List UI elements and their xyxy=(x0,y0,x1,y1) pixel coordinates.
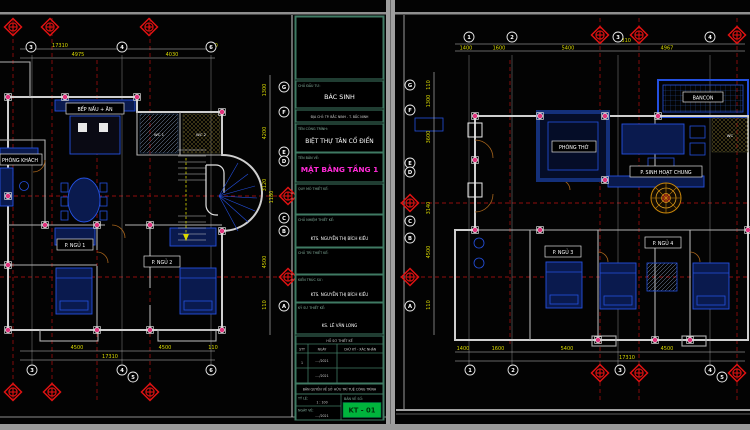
dim-label: 110 xyxy=(426,80,432,90)
grid-bubble: G xyxy=(408,83,412,89)
table-header: NGÀY xyxy=(318,347,327,352)
investor-label: CHỦ ĐẦU TƯ: xyxy=(298,83,320,88)
room-label-wc1: WC 1 xyxy=(154,132,165,137)
grid-bubble: 4 xyxy=(120,368,124,374)
copyright-line: BẢN QUYỀN VỀ SỞ HỮU TRÍ TUỆ CÔNG TRÌNH xyxy=(303,387,377,392)
dim-label: 4500 xyxy=(661,346,674,352)
project-label: TÊN CÔNG TRÌNH: xyxy=(297,126,328,131)
grid-bubble: 3 xyxy=(29,45,33,51)
right-plan-carpet xyxy=(651,183,681,213)
grid-bubble: G xyxy=(282,85,286,91)
date-label: NGÀY VẼ: xyxy=(298,408,314,413)
drawing-name: MẶT BẰNG TẦNG 1 xyxy=(301,164,379,174)
bed-1 xyxy=(56,268,92,314)
grid-bubble: 3 xyxy=(30,368,34,374)
room-label-balcony: BANCON xyxy=(693,96,714,102)
room-label-living: PHÒNG KHÁCH xyxy=(2,157,38,164)
dim-label: 3600 xyxy=(426,131,432,144)
cad-sheet[interactable]: 17310 4975 4030 110 4500 4500 110 17310 … xyxy=(0,0,750,430)
right-plan-balcony: BANCON xyxy=(658,80,748,117)
title-block: CHỦ ĐẦU TƯ: BÁC SINH ĐỊA CHỈ: TP. BẮC NI… xyxy=(295,16,384,420)
dim-label: 4500 xyxy=(262,256,268,269)
dim-label: 1300 xyxy=(426,95,432,108)
grid-bubble: A xyxy=(408,304,412,310)
dim-label: 1180 xyxy=(269,191,275,204)
grid-bubble: 3 xyxy=(616,35,620,41)
grid-bubble: 1 xyxy=(468,368,472,374)
grid-bubble: 2 xyxy=(511,368,515,374)
architect-name: KTS. NGUYỄN THỊ BÍCH KIỀU xyxy=(311,292,369,297)
project-name: BIỆT THỰ TÂN CỔ ĐIỂN xyxy=(305,137,373,145)
dim-label: 17310 xyxy=(102,354,118,360)
scale-value: 1 : 100 xyxy=(316,401,327,405)
dim-label: 4500 xyxy=(426,246,432,259)
dim-label: 4500 xyxy=(71,345,84,351)
engineer-name: KS. LÊ VĂN LONG xyxy=(322,323,358,328)
drawing-label: TÊN BẢN VẼ: xyxy=(297,155,319,160)
investor-name: BÁC SINH xyxy=(324,92,355,101)
bed-4b xyxy=(693,263,729,309)
grid-bubble: 5 xyxy=(720,375,724,381)
title-block-table: HỒ SƠ THIẾT KẾ STT NGÀY CHỮ KÝ - XÁC NHẬ… xyxy=(296,336,383,383)
grid-bubble: 2 xyxy=(510,35,514,41)
sheet-label: BẢN VẼ SỐ: xyxy=(344,396,363,401)
dim-label: 4975 xyxy=(72,52,85,58)
dim-label: 1400 xyxy=(460,46,473,52)
dim-label: 110 xyxy=(262,300,268,310)
table-header: STT xyxy=(299,348,305,352)
room-label-common: P. SINH HOẠT CHUNG xyxy=(640,170,692,176)
dim-label: 17310 xyxy=(52,43,68,49)
grid-bubble: E xyxy=(282,150,286,156)
right-plan-worship-room: PHÒNG THỜ xyxy=(538,112,608,180)
room-label-worship: PHÒNG THỜ xyxy=(559,144,589,151)
sheet-number: KT - 01 xyxy=(349,407,376,415)
room-label-wc: WC xyxy=(727,133,734,138)
grid-bubble: 6 xyxy=(209,45,213,51)
dim-label: 17310 xyxy=(619,355,635,361)
dim-label: 4200 xyxy=(262,127,268,140)
grid-bubble: 4 xyxy=(120,45,124,51)
grid-bubble: F xyxy=(408,108,412,114)
table-row-date: ..../2021 xyxy=(315,374,328,378)
dim-label: 1300 xyxy=(262,84,268,97)
dim-label: 3120 xyxy=(262,179,268,192)
chief-name: KTS. NGUYỄN THỊ BÍCH KIỀU xyxy=(311,236,369,241)
bed-2 xyxy=(180,268,216,314)
dim-label: 1600 xyxy=(492,346,505,352)
scale-label: TỶ LỆ: xyxy=(297,396,308,401)
grid-bubble: 5 xyxy=(131,375,135,381)
grid-bubble: D xyxy=(408,170,413,176)
grid-bubble: A xyxy=(282,304,286,310)
table-row-index: 1 xyxy=(301,361,303,365)
grid-bubble: B xyxy=(408,236,412,242)
dim-label: 4500 xyxy=(159,345,172,351)
grid-bubble: D xyxy=(282,159,287,165)
address-line: ĐỊA CHỈ: TP. BẮC NINH - T. BẮC NINH xyxy=(311,114,369,119)
grid-bubble: 4 xyxy=(708,35,712,41)
dim-label: 5400 xyxy=(561,346,574,352)
table-header: CHỮ KÝ - XÁC NHẬN xyxy=(344,347,377,352)
dim-label: 4030 xyxy=(166,52,179,58)
dim-label: 3140 xyxy=(426,202,432,215)
dim-label: 110 xyxy=(426,300,432,310)
grid-bubble: F xyxy=(282,110,286,116)
grid-bubble: 1 xyxy=(467,35,471,41)
bed-3 xyxy=(546,262,582,308)
dim-label: 1600 xyxy=(493,46,506,52)
title-block-bottom: TỶ LỆ: 1 : 100 NGÀY VẼ: ..../2021 BẢN VẼ… xyxy=(296,394,383,420)
grid-bubble: C xyxy=(282,216,286,222)
grid-bubble: B xyxy=(282,229,286,235)
grid-bubble: 6 xyxy=(209,368,213,374)
grid-bubble: 4 xyxy=(708,368,712,374)
room-label-wc2: WC 2 xyxy=(196,132,207,137)
grid-bubble: 3 xyxy=(618,368,622,374)
dim-label: 4967 xyxy=(661,46,674,52)
bed-4a xyxy=(600,263,636,309)
date-value: ..../2021 xyxy=(315,414,328,418)
table-row-date: ..../2021 xyxy=(315,359,328,363)
dim-label: 110 xyxy=(208,345,218,351)
dim-label: 1400 xyxy=(457,346,470,352)
grid-bubble: C xyxy=(408,219,412,225)
grid-bubble: E xyxy=(408,161,412,167)
dim-label: 5400 xyxy=(562,46,575,52)
cad-drawing-canvas[interactable]: 17310 4975 4030 110 4500 4500 110 17310 … xyxy=(0,0,750,430)
